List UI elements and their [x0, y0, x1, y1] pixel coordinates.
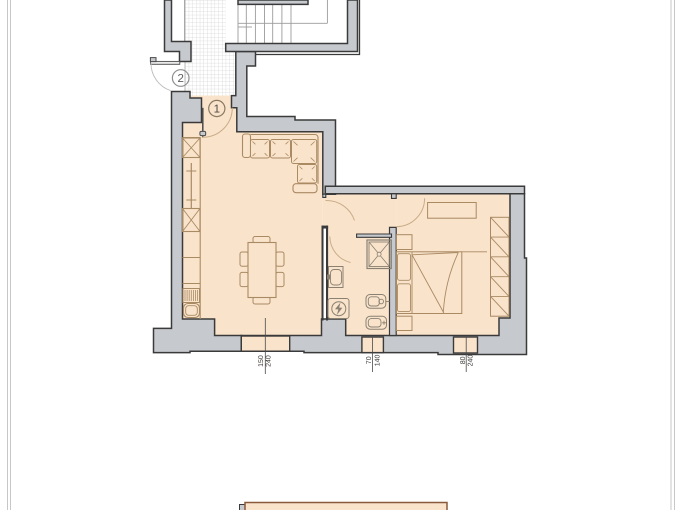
svg-text:2: 2	[177, 73, 183, 85]
svg-text:240: 240	[266, 355, 273, 367]
svg-text:1: 1	[214, 103, 220, 115]
svg-text:140: 140	[375, 354, 382, 366]
svg-text:150: 150	[258, 355, 265, 367]
svg-text:240: 240	[468, 355, 475, 367]
svg-text:70: 70	[366, 356, 373, 364]
svg-text:80: 80	[460, 356, 467, 364]
